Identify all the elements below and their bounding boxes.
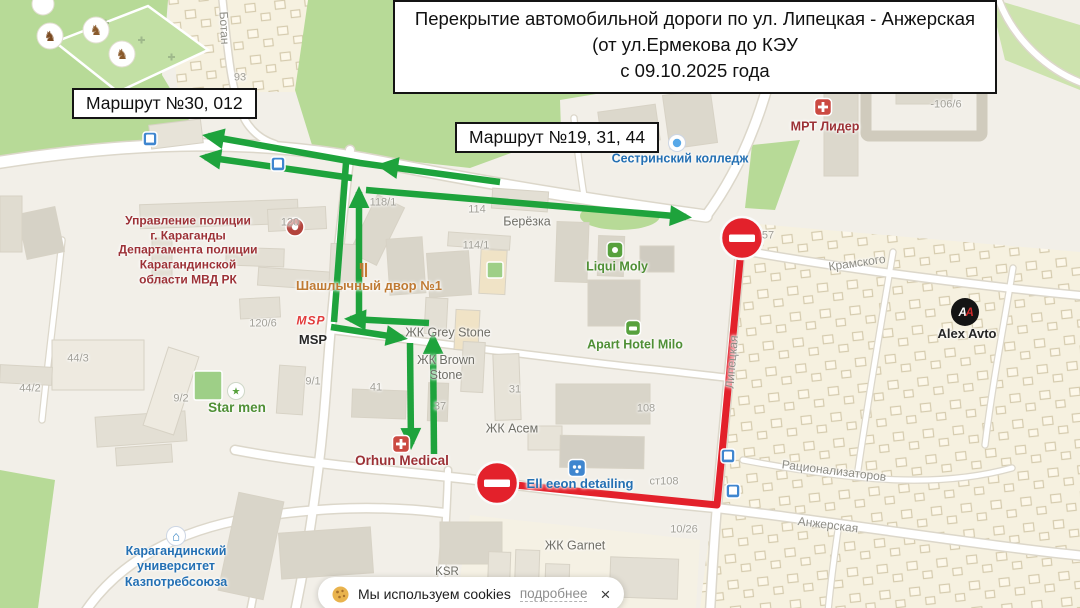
college-icon — [669, 135, 686, 152]
svg-text:A: A — [965, 307, 974, 319]
no-entry-sign-1 — [721, 217, 763, 259]
cookie-message: Мы используем cookies — [358, 586, 511, 602]
horse-icon: ♞ — [90, 22, 103, 38]
liqui-moly-icon — [607, 242, 623, 258]
bus-stop-icon — [721, 449, 735, 463]
closure-title-line2: (от ул.Ермекова до КЭУ — [405, 32, 985, 58]
alex-avto-logo: A A — [951, 298, 979, 326]
star-men-icon: ★ — [228, 383, 245, 400]
orhun-medical-icon — [393, 436, 410, 453]
bus-stop-icon — [143, 132, 157, 146]
bus-stop-icon — [726, 484, 740, 498]
apart-hotel-icon — [626, 321, 641, 336]
horse-icon: ♞ — [116, 46, 129, 62]
cookie-details-link[interactable]: подробнее — [520, 586, 588, 602]
bus-stop-icon — [271, 157, 285, 171]
route-label-30-012: Маршрут №30, 012 — [72, 88, 257, 119]
map-viewport[interactable]: ♞ ♞ ♞ — [0, 0, 1080, 608]
goat-icon: ♞ — [44, 28, 57, 44]
mrt-lider-icon — [815, 99, 832, 116]
cookie-icon — [332, 586, 349, 603]
closure-title-line3: с 09.10.2025 года — [405, 58, 985, 84]
university-icon: ⌂ — [167, 527, 186, 546]
close-icon[interactable]: × — [600, 586, 610, 603]
cookie-banner: Мы используем cookies подробнее × — [318, 577, 624, 608]
closure-title-box: Перекрытие автомобильной дороги по ул. Л… — [393, 0, 997, 94]
svg-text:★: ★ — [232, 387, 241, 398]
no-entry-sign-2 — [476, 462, 518, 504]
svg-text:⌂: ⌂ — [172, 529, 180, 544]
ell-eeon-icon — [569, 460, 586, 477]
police-icon — [286, 218, 304, 236]
closure-title-line1: Перекрытие автомобильной дороги по ул. Л… — [405, 6, 985, 32]
route-label-19-31-44: Маршрут №19, 31, 44 — [455, 122, 659, 153]
